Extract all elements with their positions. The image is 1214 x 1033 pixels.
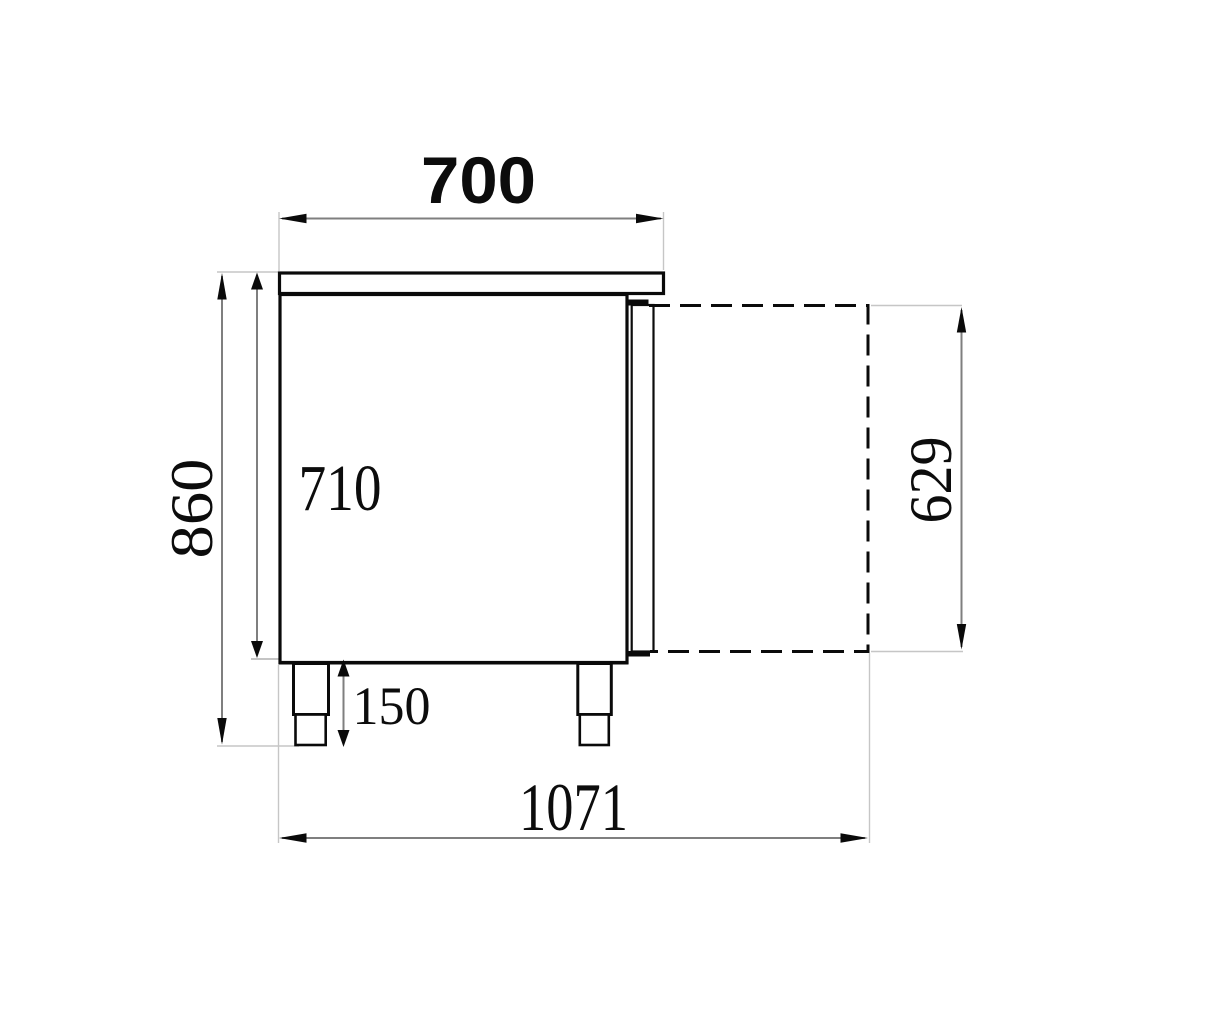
- svg-text:710: 710: [299, 452, 382, 525]
- svg-text:629: 629: [898, 437, 964, 524]
- svg-text:150: 150: [353, 676, 431, 736]
- svg-text:860: 860: [159, 459, 225, 559]
- svg-text:700: 700: [421, 143, 536, 217]
- svg-text:1071: 1071: [519, 769, 628, 845]
